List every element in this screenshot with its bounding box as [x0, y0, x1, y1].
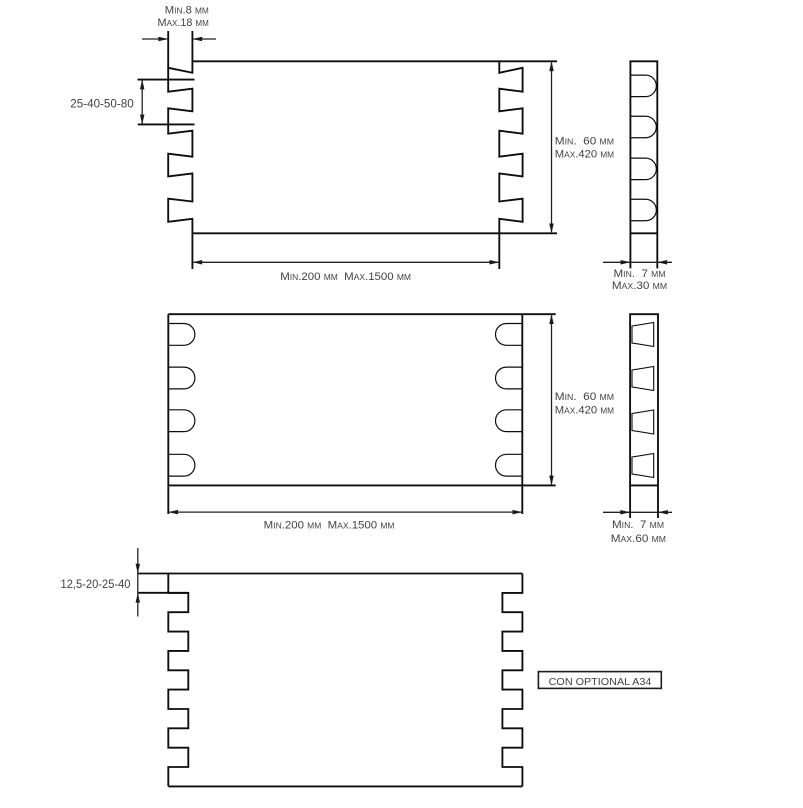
- svg-text:Max.18 mm: Max.18 mm: [158, 17, 210, 29]
- svg-text:Max.420 mm: Max.420 mm: [555, 404, 615, 416]
- svg-text:Min.200 mm Max.1500 mm: Min.200 mm Max.1500 mm: [280, 271, 411, 283]
- svg-text:Min. 7 mm: Min. 7 mm: [612, 519, 664, 531]
- svg-text:Max.60 mm: Max.60 mm: [611, 533, 667, 545]
- svg-text:Max.420 mm: Max.420 mm: [555, 149, 615, 161]
- svg-text:Min. 60 mm: Min. 60 mm: [555, 391, 615, 403]
- svg-text:Min. 60 mm: Min. 60 mm: [555, 135, 615, 147]
- svg-text:CON OPTIONAL A34: CON OPTIONAL A34: [549, 676, 652, 688]
- svg-text:12,5-20-25-40: 12,5-20-25-40: [61, 578, 131, 591]
- svg-text:Min.200 mm Max.1500 mm: Min.200 mm Max.1500 mm: [264, 520, 395, 532]
- svg-text:Min. 7 mm: Min. 7 mm: [614, 268, 666, 280]
- svg-text:Max.30 mm: Max.30 mm: [612, 280, 668, 292]
- svg-text:Min.8 mm: Min.8 mm: [165, 5, 209, 17]
- svg-text:25-40-50-80: 25-40-50-80: [70, 98, 134, 111]
